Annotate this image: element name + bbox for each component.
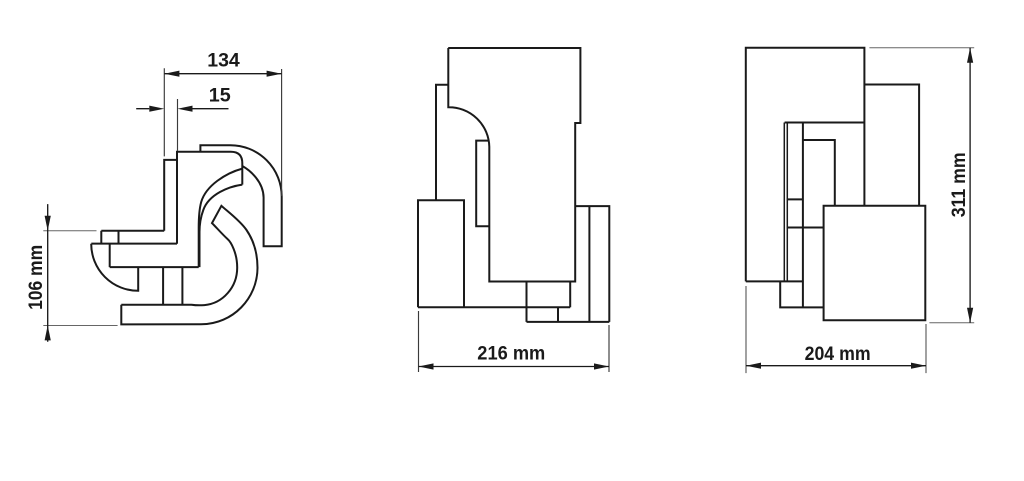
svg-text:204 mm: 204 mm — [805, 343, 871, 365]
svg-text:134: 134 — [207, 49, 240, 71]
svg-text:216 mm: 216 mm — [477, 343, 545, 365]
svg-text:311 mm: 311 mm — [948, 152, 970, 217]
svg-text:15: 15 — [209, 84, 231, 106]
svg-text:106 mm: 106 mm — [25, 245, 47, 310]
